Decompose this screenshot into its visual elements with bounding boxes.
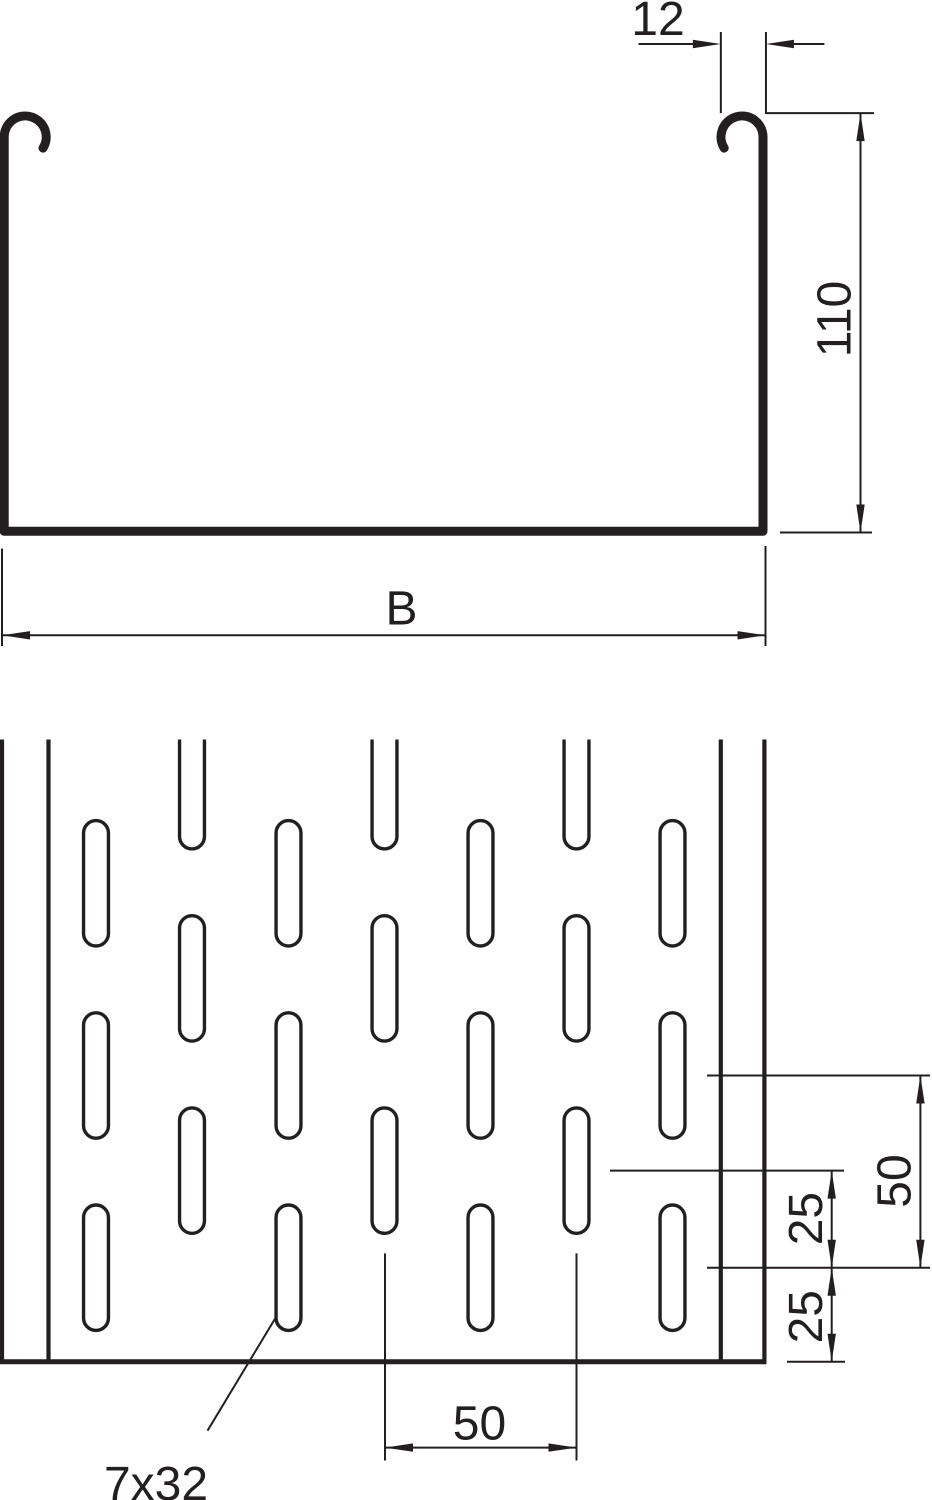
svg-text:25: 25: [780, 1290, 833, 1343]
svg-text:50: 50: [453, 1398, 506, 1451]
svg-text:50: 50: [869, 1154, 922, 1207]
svg-text:12: 12: [631, 0, 684, 46]
svg-text:B: B: [385, 582, 417, 635]
svg-text:110: 110: [809, 281, 862, 358]
svg-text:25: 25: [780, 1192, 833, 1245]
svg-text:7x32: 7x32: [104, 1458, 208, 1500]
